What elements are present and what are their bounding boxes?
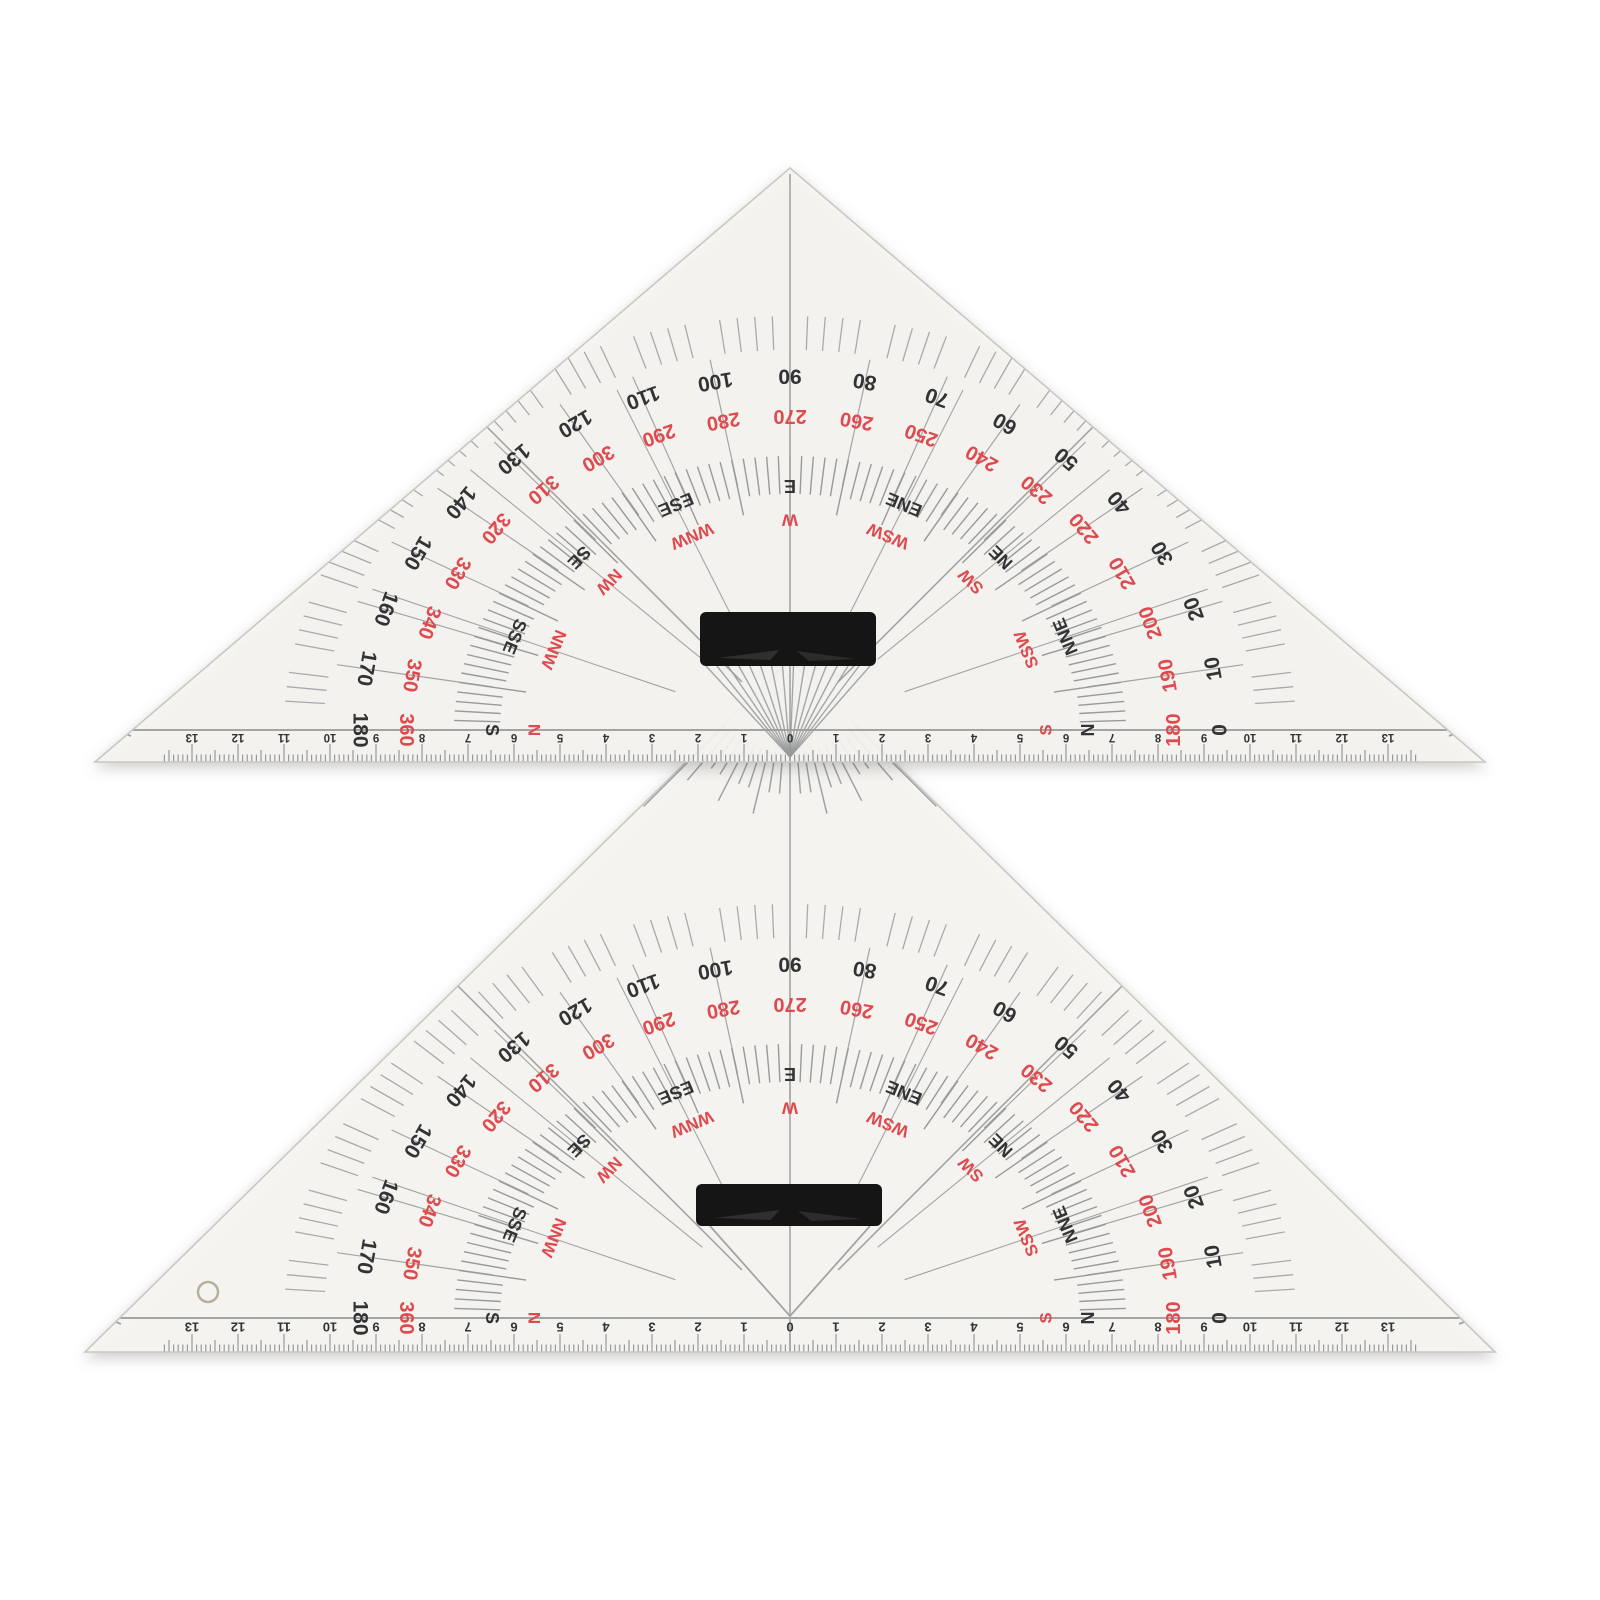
svg-text:270: 270 [773,405,806,427]
svg-text:12: 12 [232,731,245,743]
svg-text:8: 8 [1154,1320,1161,1335]
svg-text:W: W [781,511,798,530]
scene-canvas: 0180101902020030210402205023060240702508… [0,0,1600,1600]
svg-text:9: 9 [373,731,379,743]
product-photo: 0180101902020030210402205023060240702508… [0,0,1600,1600]
grip-handle-bar [696,1184,882,1226]
svg-text:0: 0 [1209,1312,1232,1324]
svg-text:10: 10 [1200,655,1227,682]
svg-text:0: 0 [786,1320,793,1335]
svg-text:1: 1 [740,1320,747,1335]
svg-text:2: 2 [878,1320,885,1335]
svg-text:9: 9 [1201,731,1207,743]
svg-text:1: 1 [832,1320,839,1335]
svg-text:6: 6 [511,731,517,743]
svg-text:6: 6 [1063,731,1069,743]
svg-text:13: 13 [1381,1320,1395,1335]
svg-text:4: 4 [602,1320,610,1335]
svg-text:360: 360 [395,1301,417,1334]
svg-text:10: 10 [323,1320,337,1335]
svg-text:S: S [1037,724,1056,735]
svg-text:11: 11 [277,731,290,743]
plotting-triangle-rear: 0180101902020030210402205023060240702508… [95,168,1485,762]
svg-text:180: 180 [1163,1301,1185,1334]
svg-text:12: 12 [231,1320,245,1335]
svg-text:9: 9 [1200,1320,1207,1335]
svg-text:80: 80 [851,956,878,983]
svg-text:2: 2 [695,731,701,743]
plotting-triangle-front: 0180101902020030210402205023060240702508… [85,660,1495,1352]
svg-text:8: 8 [418,1320,425,1335]
svg-text:0: 0 [787,731,793,743]
svg-text:7: 7 [464,1320,471,1335]
svg-text:13: 13 [1382,731,1395,743]
svg-text:0: 0 [1209,724,1232,736]
svg-text:9: 9 [372,1320,379,1335]
svg-text:90: 90 [778,365,801,388]
svg-text:6: 6 [1062,1320,1069,1335]
svg-text:12: 12 [1336,731,1349,743]
svg-text:12: 12 [1335,1320,1349,1335]
svg-text:270: 270 [773,993,806,1015]
svg-text:1: 1 [740,731,747,743]
svg-text:S: S [482,1312,502,1324]
svg-text:11: 11 [277,1320,291,1335]
svg-text:10: 10 [324,731,337,743]
svg-text:5: 5 [1016,1320,1023,1335]
svg-text:4: 4 [970,1320,978,1335]
svg-text:10: 10 [1200,1243,1227,1270]
svg-text:E: E [784,476,796,496]
svg-text:W: W [781,1099,798,1118]
svg-text:7: 7 [1109,731,1115,743]
svg-text:7: 7 [1108,1320,1115,1335]
svg-text:3: 3 [924,1320,931,1335]
svg-text:90: 90 [778,953,801,976]
svg-text:5: 5 [556,731,563,743]
svg-text:5: 5 [556,1320,563,1335]
svg-text:2: 2 [694,1320,701,1335]
svg-text:3: 3 [648,1320,655,1335]
svg-text:180: 180 [349,712,372,747]
svg-text:S: S [1037,1312,1056,1323]
svg-text:N: N [525,1312,544,1324]
svg-text:1: 1 [832,731,839,743]
svg-text:10: 10 [1244,731,1257,743]
svg-text:4: 4 [602,731,609,743]
svg-text:S: S [482,724,502,736]
svg-text:4: 4 [970,731,977,743]
svg-text:3: 3 [649,731,655,743]
svg-text:180: 180 [1163,713,1185,746]
svg-text:180: 180 [349,1300,372,1335]
svg-text:N: N [525,724,544,736]
svg-text:N: N [1078,724,1098,737]
svg-text:N: N [1078,1312,1098,1325]
svg-text:2: 2 [879,731,885,743]
svg-text:10: 10 [1243,1320,1257,1335]
svg-text:3: 3 [925,731,931,743]
svg-text:8: 8 [418,731,425,743]
svg-text:5: 5 [1016,731,1023,743]
svg-text:360: 360 [395,713,417,746]
svg-text:13: 13 [185,1320,199,1335]
svg-text:80: 80 [851,368,878,395]
svg-text:8: 8 [1154,731,1161,743]
svg-text:11: 11 [1289,731,1302,743]
svg-text:7: 7 [465,731,471,743]
svg-text:6: 6 [510,1320,517,1335]
svg-text:11: 11 [1289,1320,1303,1335]
svg-text:E: E [784,1064,796,1084]
svg-text:13: 13 [186,731,199,743]
